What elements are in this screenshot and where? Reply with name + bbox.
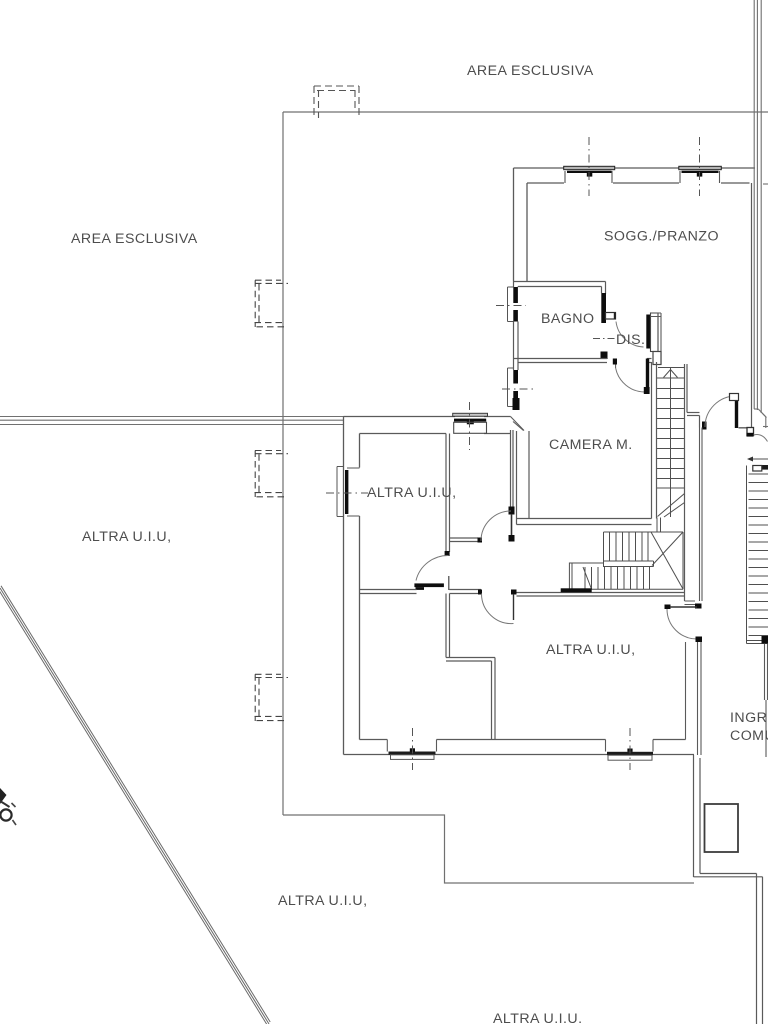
svg-text:AREA ESCLUSIVA: AREA ESCLUSIVA: [71, 231, 198, 247]
svg-text:DIS.: DIS.: [616, 332, 645, 348]
svg-text:COMUNE: COMUNE: [730, 728, 768, 744]
svg-text:CAMERA M.: CAMERA M.: [549, 437, 633, 453]
svg-text:ALTRA U.I.U.: ALTRA U.I.U.: [493, 1011, 583, 1024]
svg-text:AREA ESCLUSIVA: AREA ESCLUSIVA: [467, 63, 594, 79]
svg-text:SOGG./PRANZO: SOGG./PRANZO: [604, 229, 719, 245]
svg-text:BAGNO: BAGNO: [541, 311, 595, 327]
svg-text:ALTRA U.I.U,: ALTRA U.I.U,: [367, 485, 457, 501]
svg-text:ALTRA U.I.U,: ALTRA U.I.U,: [82, 529, 172, 545]
svg-text:ALTRA U.I.U,: ALTRA U.I.U,: [278, 893, 368, 909]
svg-text:INGRESSO: INGRESSO: [730, 710, 768, 726]
svg-text:ALTRA U.I.U,: ALTRA U.I.U,: [546, 642, 636, 658]
